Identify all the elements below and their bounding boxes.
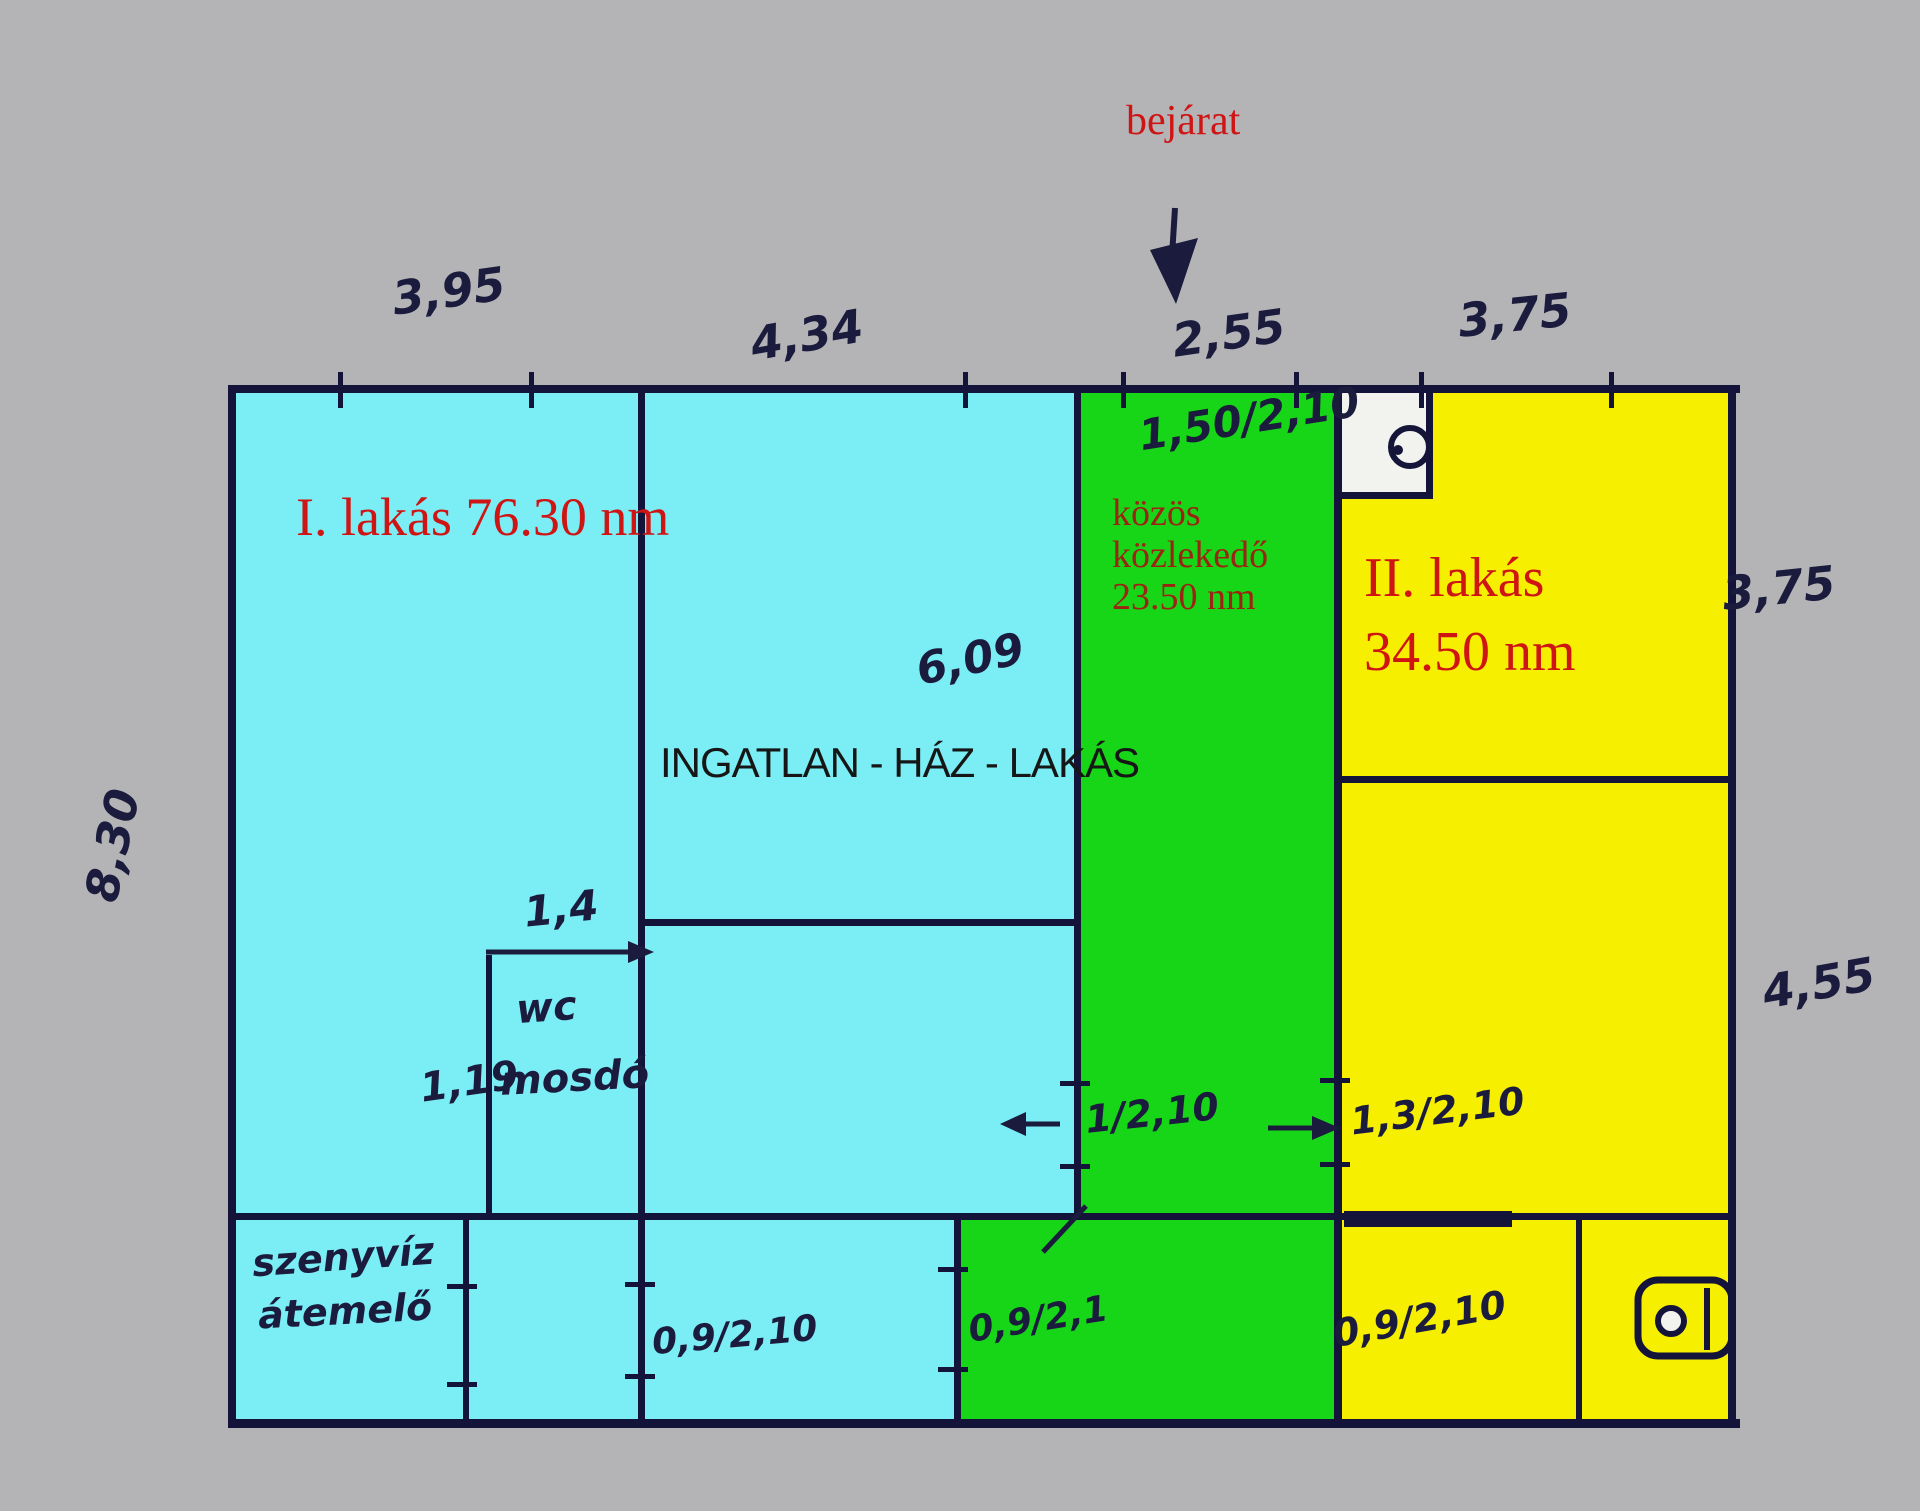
corridor-label-line2: közlekedő — [1112, 536, 1268, 574]
door-arrowhead-left-icon — [1000, 1112, 1026, 1136]
boiler-dot-icon — [1393, 445, 1403, 455]
apartment-2-label-line1: II. lakás — [1364, 550, 1544, 606]
width-arrowhead-icon — [628, 941, 654, 963]
door-arrowhead-right-icon — [1312, 1116, 1340, 1140]
dim-right-1: 3,75 — [1720, 559, 1838, 617]
entrance-label: bejárat — [1126, 100, 1240, 142]
apartment-2-label-line2: 34.50 nm — [1364, 624, 1576, 680]
entrance-arrowhead-icon — [1150, 238, 1198, 304]
toilet-icon — [1638, 1280, 1732, 1356]
apartment-1-label: I. lakás 76.30 nm — [296, 490, 669, 544]
floor-plan-sketch: bejárat I. lakás 76.30 nm közös közleked… — [0, 0, 1920, 1511]
watermark-text: INGATLAN - HÁZ - LAKÁS — [660, 742, 1139, 784]
wc-width-dim: 1,4 — [522, 884, 600, 934]
corridor-label-line1: közös — [1112, 494, 1201, 532]
door-swing-line — [1043, 1206, 1086, 1252]
corridor-label-line3: 23.50 nm — [1112, 578, 1256, 616]
mosdo-label: mosdó — [499, 1054, 650, 1102]
wc-label: wc — [515, 986, 578, 1030]
dim-top-4: 3,75 — [1456, 286, 1574, 344]
pump-note-line2: átemelő — [257, 1287, 433, 1334]
